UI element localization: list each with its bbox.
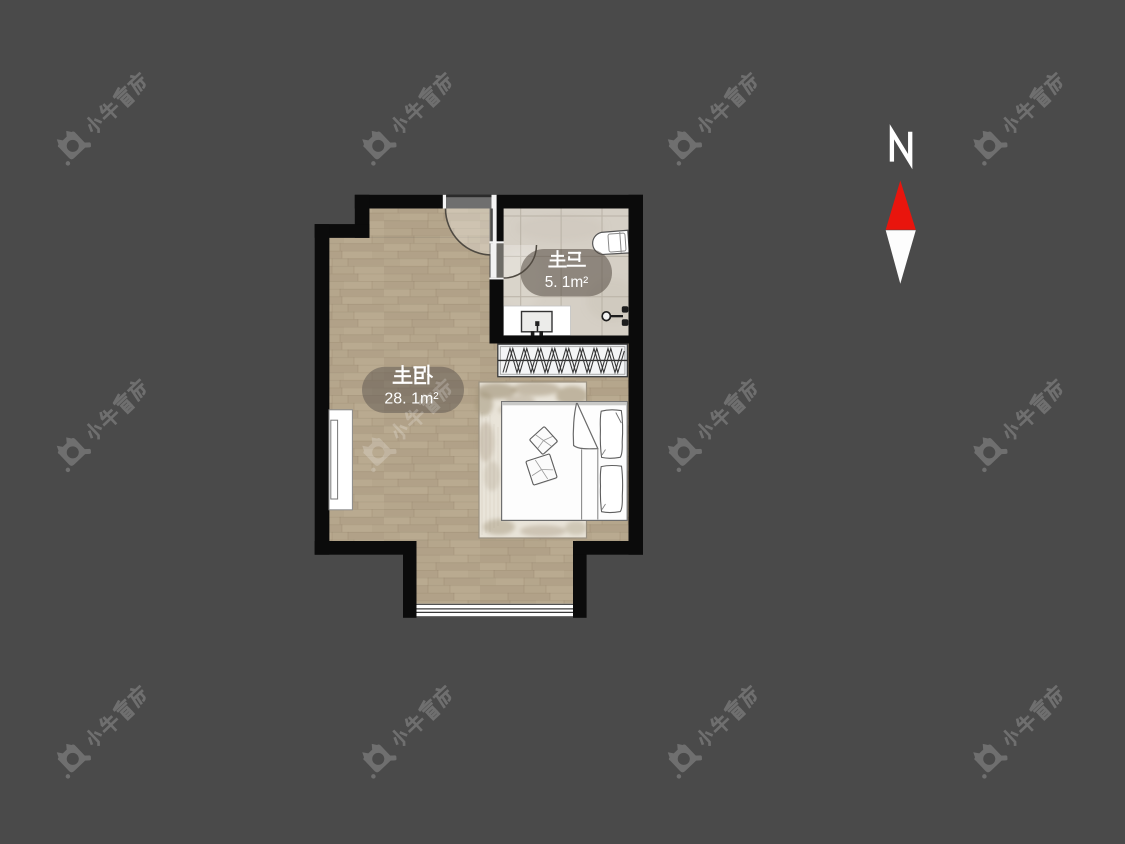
svg-text:5. 1m²: 5. 1m² [545,274,589,291]
